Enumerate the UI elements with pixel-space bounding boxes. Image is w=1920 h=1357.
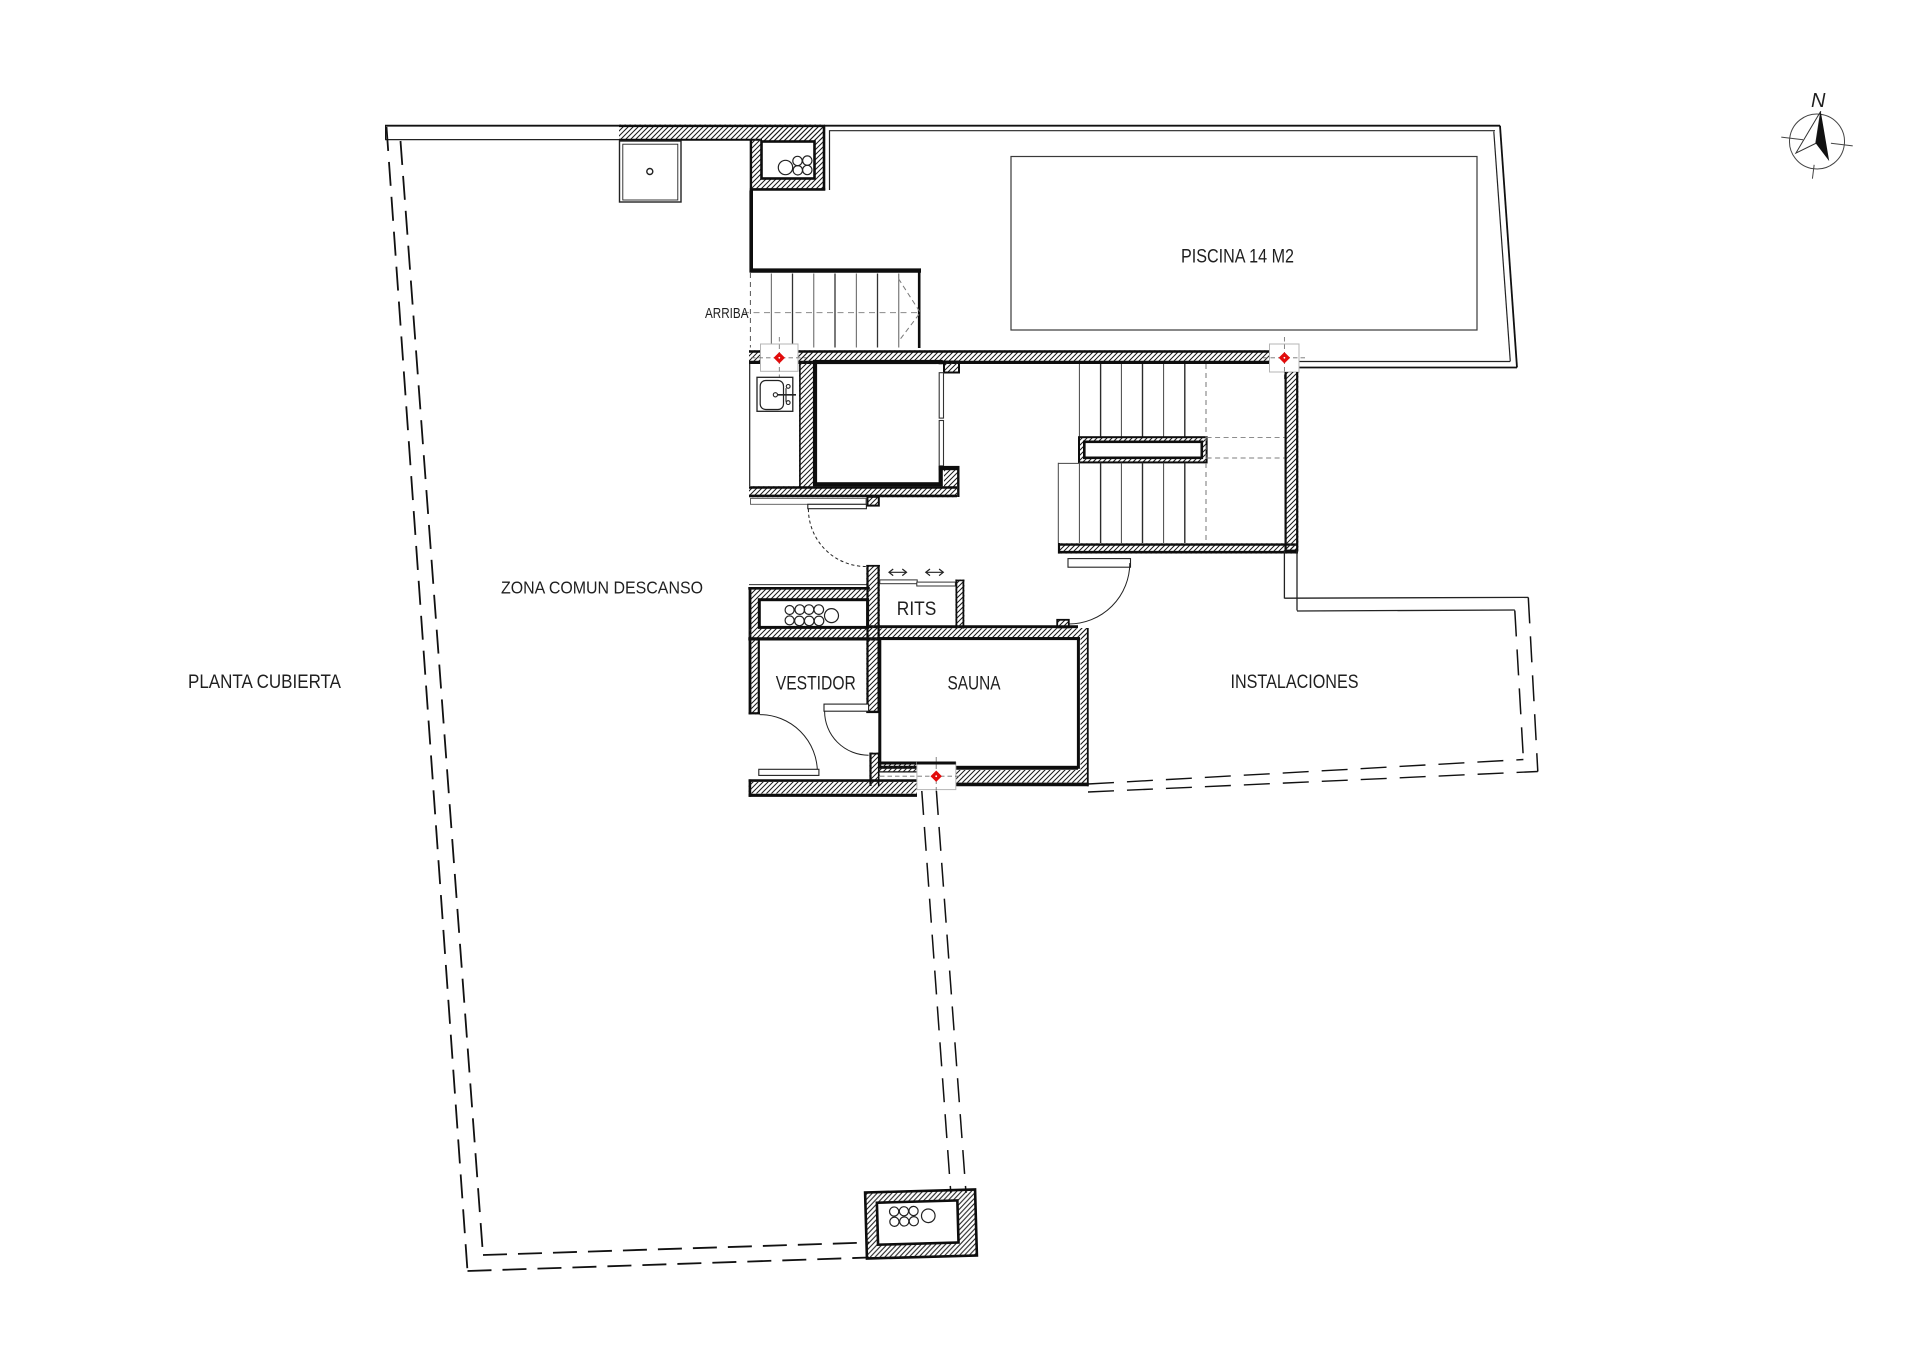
svg-text:N: N <box>1811 90 1826 112</box>
svg-text:PISCINA 14 M2: PISCINA 14 M2 <box>1181 246 1294 268</box>
svg-text:SAUNA: SAUNA <box>948 673 1001 694</box>
svg-text:ZONA COMUN DESCANSO: ZONA COMUN DESCANSO <box>501 578 703 598</box>
svg-text:ARRIBA: ARRIBA <box>705 305 749 322</box>
svg-text:PLANTA CUBIERTA: PLANTA CUBIERTA <box>188 672 341 693</box>
svg-text:RITS: RITS <box>897 599 937 620</box>
svg-text:INSTALACIONES: INSTALACIONES <box>1231 671 1359 693</box>
svg-text:VESTIDOR: VESTIDOR <box>776 672 856 694</box>
